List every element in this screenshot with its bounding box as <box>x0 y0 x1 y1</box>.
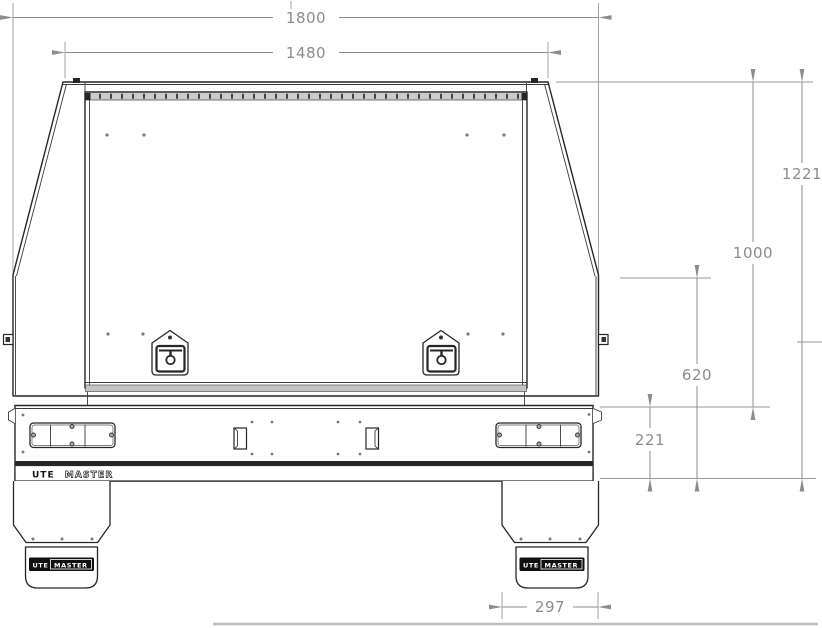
mudflap-badge-master: MASTER <box>54 562 88 570</box>
mudflap-right: UTE MASTER <box>516 547 588 588</box>
dim-label-overall-width: 1800 <box>286 9 326 27</box>
lock-top-screw <box>168 336 172 340</box>
door-hinge-strip <box>86 93 527 101</box>
wheel-right <box>502 481 599 543</box>
mudflap-badge-master: MASTER <box>545 562 579 570</box>
door-rivet <box>142 133 145 136</box>
tray-rivet <box>22 451 25 454</box>
tray-rivet <box>271 421 274 424</box>
mudflap-left: UTE MASTER <box>26 547 98 588</box>
wheel-rivet <box>549 538 552 541</box>
tray-rivet <box>251 453 254 456</box>
bracket-body <box>366 428 379 449</box>
lock-top-screw <box>439 336 443 340</box>
door-rivet <box>141 332 144 335</box>
tray-logo-master: MASTER <box>65 471 114 481</box>
mudflap-badge-ute: UTE <box>33 562 49 570</box>
mudflap-badge-ute: UTE <box>523 562 539 570</box>
dim-label-handle-height: 620 <box>682 366 712 384</box>
tie-down-bracket-left <box>234 428 247 449</box>
side-latch-left <box>4 335 14 345</box>
tray-rivet <box>588 451 591 454</box>
tail-light-bolt <box>537 425 541 429</box>
tray-rivet <box>22 414 25 417</box>
roof-mount-right <box>531 78 538 83</box>
technical-drawing-canopy-rear-view: 1800 1480 1221 1000 620 221 2 <box>0 0 822 628</box>
dim-label-tray-side-height: 221 <box>635 431 665 449</box>
tie-down-bracket-right <box>366 428 379 449</box>
wheel-rivet <box>32 538 35 541</box>
tail-light-right <box>496 423 581 448</box>
tray-rivet <box>359 453 362 456</box>
door-rivet <box>502 133 505 136</box>
bracket-body <box>234 428 247 449</box>
tray-rivet <box>271 453 274 456</box>
wheel-rivet <box>579 538 582 541</box>
tray-rivet <box>337 453 340 456</box>
dim-label-mudflap-width: 297 <box>535 598 565 616</box>
tray-corner-gusset-left <box>9 409 16 424</box>
side-latch-right <box>599 335 609 345</box>
door-hinge-end-left <box>85 93 91 100</box>
wheel-rivet <box>61 538 64 541</box>
door-rivet <box>465 133 468 136</box>
tail-light-bolt <box>537 442 541 446</box>
canopy <box>4 78 609 405</box>
tray-corner-gusset-right <box>593 409 602 424</box>
lock-key-cylinder <box>437 356 445 364</box>
tail-light-bolt <box>498 433 502 437</box>
latch-detail <box>602 337 607 342</box>
dim-label-canopy-top-width: 1480 <box>286 44 326 62</box>
wheel-outline <box>14 481 111 543</box>
tail-light-bolt <box>576 433 580 437</box>
tray: UTE MASTER <box>9 406 602 482</box>
roof-mount-left <box>73 78 80 83</box>
door-rivet <box>501 332 504 335</box>
tray-rivet <box>251 421 254 424</box>
door-rivet <box>105 133 108 136</box>
wheel-left <box>14 481 111 543</box>
tray-bottom-rail-dark <box>15 461 593 466</box>
tail-light-left <box>30 423 115 448</box>
tail-light-bolt <box>110 433 114 437</box>
latch-detail <box>6 337 11 342</box>
door-rivet <box>106 332 109 335</box>
door-hinge-end-right <box>522 93 528 100</box>
door-rivet <box>466 332 469 335</box>
tray-logo-ute: UTE <box>32 471 55 481</box>
wheel-rivet <box>520 538 523 541</box>
tail-light-bolt <box>70 442 74 446</box>
wheel-rivet <box>91 538 94 541</box>
wheel-outline <box>502 481 599 543</box>
rear-door <box>85 92 527 405</box>
tail-light-bolt <box>70 425 74 429</box>
door-bottom-rail <box>86 385 527 392</box>
tray-rivet <box>359 421 362 424</box>
tray-rivet <box>337 421 340 424</box>
dim-label-canopy-height: 1000 <box>733 244 773 262</box>
tail-light-bolt <box>32 433 36 437</box>
dim-label-overall-height: 1221 <box>782 165 822 183</box>
door-outline <box>85 92 527 388</box>
lock-key-cylinder <box>166 356 174 364</box>
tray-rivet <box>588 413 591 416</box>
